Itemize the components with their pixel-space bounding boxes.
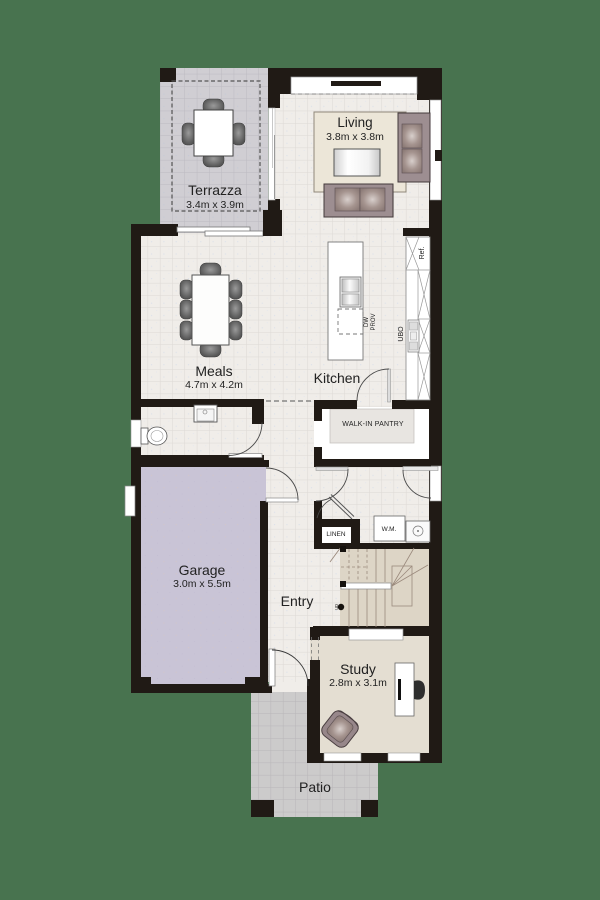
svg-text:4.7m x 4.2m: 4.7m x 4.2m: [185, 379, 243, 391]
svg-text:Garage: Garage: [179, 562, 226, 578]
svg-text:Entry: Entry: [281, 593, 314, 609]
svg-text:2.8m x 3.1m: 2.8m x 3.1m: [329, 677, 387, 689]
svg-text:PROV: PROV: [371, 313, 377, 330]
svg-text:UBO: UBO: [398, 326, 405, 342]
svg-text:Patio: Patio: [299, 779, 331, 795]
svg-text:Living: Living: [337, 115, 372, 130]
svg-text:LINEN: LINEN: [326, 531, 345, 538]
svg-text:W.M.: W.M.: [382, 526, 397, 533]
svg-text:Ref.: Ref.: [419, 247, 426, 260]
svg-text:Study: Study: [340, 661, 376, 677]
svg-text:Meals: Meals: [195, 363, 232, 379]
svg-text:WALK-IN PANTRY: WALK-IN PANTRY: [342, 421, 404, 428]
svg-text:DW: DW: [364, 317, 370, 327]
svg-text:3.0m x 5.5m: 3.0m x 5.5m: [173, 578, 231, 590]
svg-text:Kitchen: Kitchen: [314, 370, 361, 386]
svg-text:up: up: [334, 604, 340, 610]
svg-text:Terrazza: Terrazza: [188, 182, 242, 198]
svg-text:3.4m x 3.9m: 3.4m x 3.9m: [186, 199, 244, 211]
svg-text:3.8m x 3.8m: 3.8m x 3.8m: [326, 131, 384, 143]
